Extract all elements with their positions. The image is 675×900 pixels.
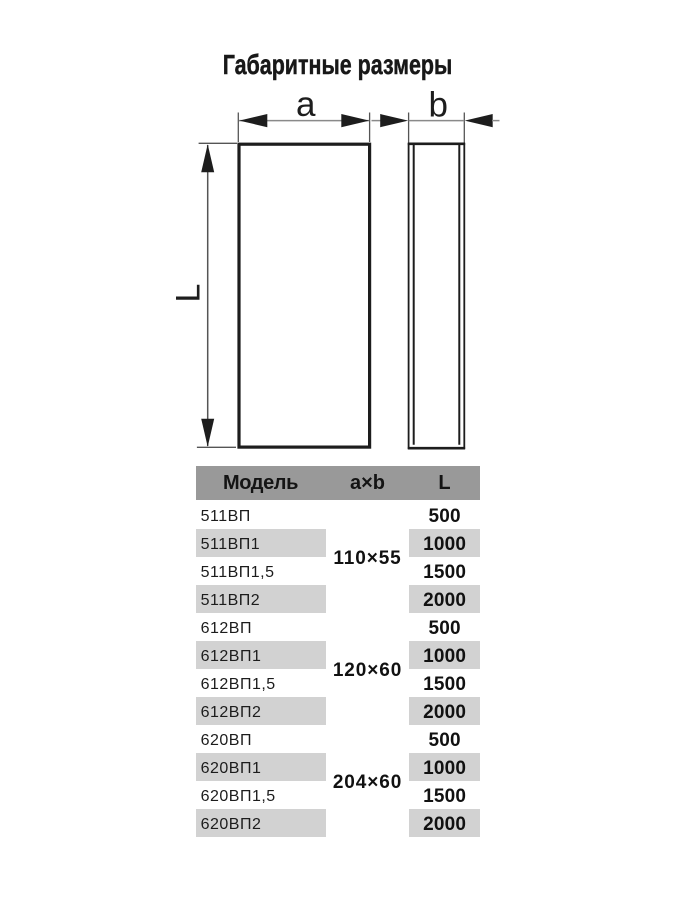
svg-text:a: a bbox=[296, 85, 316, 124]
svg-text:b: b bbox=[428, 86, 447, 125]
svg-text:L: L bbox=[169, 284, 207, 303]
